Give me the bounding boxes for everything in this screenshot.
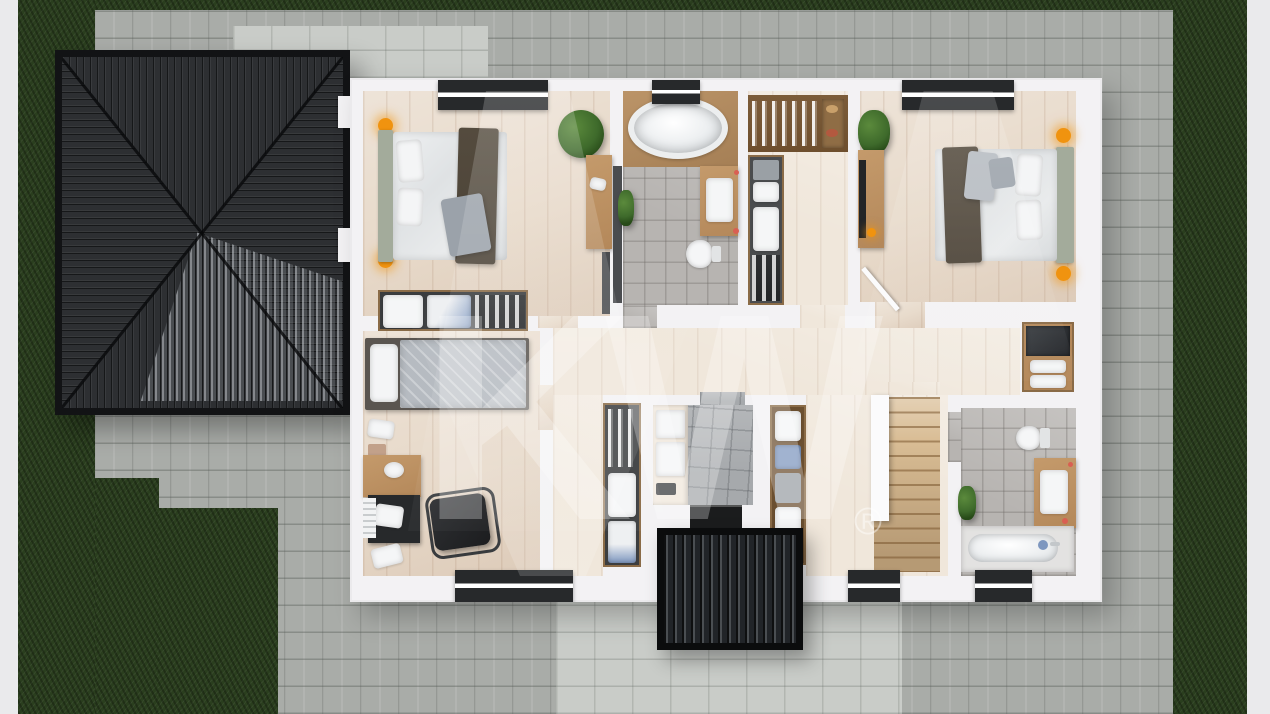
wardrobe-linen-blue xyxy=(427,295,471,328)
hanging-clothes xyxy=(752,101,818,146)
window-bottom-bathroom-2 xyxy=(975,570,1032,602)
plant-icon xyxy=(558,110,604,158)
cabinet-towel xyxy=(1030,375,1066,388)
entrance-canopy-roof xyxy=(657,528,803,650)
bathroom-2-door-opening xyxy=(948,412,961,462)
counter-mirror xyxy=(656,442,685,476)
closet-door-opening xyxy=(800,305,845,328)
bedroom-1-dark-door-panel xyxy=(602,252,610,314)
bed-3-blanket xyxy=(400,340,526,408)
closet-hanging-rail xyxy=(748,95,848,152)
cabinet-towel xyxy=(1030,360,1066,373)
bathroom-1-door-opening xyxy=(623,305,657,328)
hall-shelf-left xyxy=(603,403,641,567)
floorplan-render: KW ® xyxy=(0,0,1270,714)
folded-towel xyxy=(753,182,779,202)
bedroom-1-door-opening xyxy=(538,316,578,328)
wall-lamp-icon xyxy=(1056,266,1071,281)
hallway-floor xyxy=(553,328,1020,395)
grass-bottom-left-b xyxy=(157,508,278,714)
closet-shelf-column xyxy=(748,155,784,305)
bathroom-2-sink xyxy=(1040,470,1068,514)
bath-towel-blue xyxy=(1038,540,1048,550)
soap-accent xyxy=(734,170,739,175)
bed-2-pillow xyxy=(1015,199,1043,240)
folded-towels xyxy=(753,207,779,251)
window-top-bedroom-1 xyxy=(438,80,548,110)
plot-edge-left xyxy=(0,0,18,714)
shelf-linen-blue xyxy=(608,521,636,563)
soap-accent xyxy=(733,228,739,234)
bedroom-2-door-opening xyxy=(875,302,925,328)
garage-roof-surface xyxy=(62,57,343,408)
bed-1-pillow xyxy=(396,187,424,226)
shelf-boxes xyxy=(608,473,636,517)
bed-1-pillow xyxy=(395,139,425,183)
grass-top-band xyxy=(18,0,1247,10)
hall-corridor-left-floor xyxy=(553,395,603,576)
wall-lamp-icon xyxy=(1056,128,1071,143)
shoe-shelf xyxy=(752,255,780,301)
toilet-2-cistern xyxy=(1040,428,1050,448)
bedroom-3-door-opening xyxy=(538,385,553,430)
floor-papers xyxy=(367,418,395,439)
cabinet-tv xyxy=(1026,326,1070,356)
bedroom-1-wardrobe xyxy=(378,290,528,331)
grass-bottom-left-a xyxy=(95,478,159,714)
folded-towel-gray xyxy=(753,160,779,180)
wardrobe-shoe-shelf xyxy=(475,295,525,328)
counter-panel xyxy=(656,410,685,438)
bed-2-pillow xyxy=(1015,153,1044,197)
shoes-pair xyxy=(656,483,676,495)
plot-edge-right xyxy=(1247,0,1270,714)
plant-icon xyxy=(618,190,634,226)
vestibule-door-opening xyxy=(700,392,745,405)
plant-icon xyxy=(958,486,976,520)
hall-media-cabinet xyxy=(1022,322,1074,392)
toilet-1 xyxy=(686,240,712,268)
wardrobe-linen xyxy=(383,295,423,328)
vestibule-counter xyxy=(653,405,688,505)
shelf-clothes xyxy=(608,409,636,467)
bed-2-cushion xyxy=(988,156,1016,189)
plant-icon xyxy=(858,110,890,154)
toilet-1-cistern xyxy=(712,246,721,262)
tub-faucet xyxy=(1050,542,1060,546)
bed-3-pillow xyxy=(370,344,398,402)
candle-icon xyxy=(867,228,876,237)
bedroom-1-desk xyxy=(586,155,612,249)
book-stack xyxy=(363,498,376,538)
desk-laptop xyxy=(374,503,405,529)
shelf-towel-gray xyxy=(775,473,801,503)
stair-railing xyxy=(871,395,889,521)
garage-roof xyxy=(55,50,350,415)
window-top-bathroom-1 xyxy=(652,80,700,104)
shoes-pair xyxy=(826,105,838,113)
desk-chair xyxy=(429,492,492,551)
house-upper-floor xyxy=(350,78,1102,602)
stairs-opening xyxy=(888,382,940,395)
window-top-bedroom-2 xyxy=(902,80,1014,110)
window-bottom-stairs xyxy=(848,570,900,602)
bed-1-headboard xyxy=(378,130,393,262)
toilet-2 xyxy=(1016,426,1040,450)
bathtub xyxy=(628,97,728,159)
window-bottom-bedroom-3 xyxy=(455,570,573,602)
bathroom-1-sink xyxy=(706,178,733,222)
table-tray xyxy=(384,462,404,478)
console-tv xyxy=(859,160,866,238)
shower-glass-panel xyxy=(613,166,622,303)
bed-2-headboard xyxy=(1056,147,1074,263)
soap-accent xyxy=(1068,462,1073,467)
soap-accent xyxy=(1062,518,1068,524)
shelf-box xyxy=(775,411,801,441)
shelf-towel-blue xyxy=(775,445,801,469)
grass-right-strip xyxy=(1173,0,1247,714)
shoes-pair xyxy=(826,129,838,137)
